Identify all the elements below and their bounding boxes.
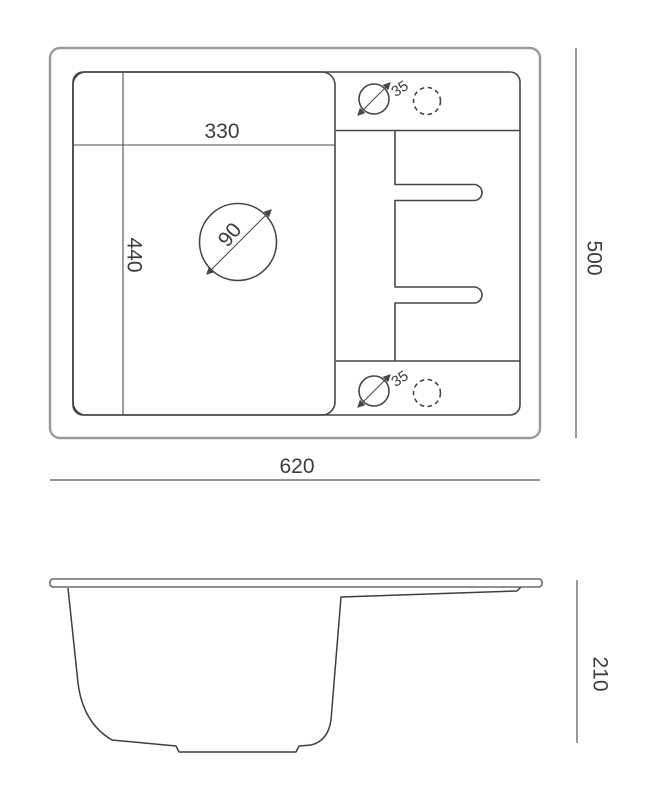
tap-hole-top: 35 — [358, 77, 441, 115]
overall-depth-label: 500 — [583, 240, 606, 275]
sink-technical-drawing: 330 440 90 35 35 — [0, 0, 654, 800]
top-view: 330 440 90 35 35 — [50, 48, 606, 480]
height-label: 210 — [589, 656, 612, 691]
drain-diameter-label: 90 — [214, 219, 247, 252]
bowl-profile-outline — [68, 587, 521, 752]
drawing-canvas: 330 440 90 35 35 — [0, 0, 654, 800]
bowl-depth-label: 440 — [123, 237, 146, 272]
side-view: 210 — [50, 579, 612, 752]
tap-hole-top-alt-circle — [414, 88, 441, 115]
overall-width-label: 620 — [279, 455, 314, 478]
tap-hole-bottom: 35 — [358, 367, 441, 407]
tap-hole-top-diameter-arrow — [358, 83, 390, 115]
drainboard-grooves — [395, 131, 482, 362]
tap-hole-bottom-alt-circle — [414, 380, 441, 407]
tap-hole-bottom-diameter-arrow — [358, 375, 390, 407]
tap-hole-bottom-label: 35 — [388, 367, 411, 390]
bowl-width-label: 330 — [204, 120, 239, 143]
tap-hole-top-label: 35 — [388, 77, 411, 100]
rim-profile-bar — [50, 579, 542, 587]
